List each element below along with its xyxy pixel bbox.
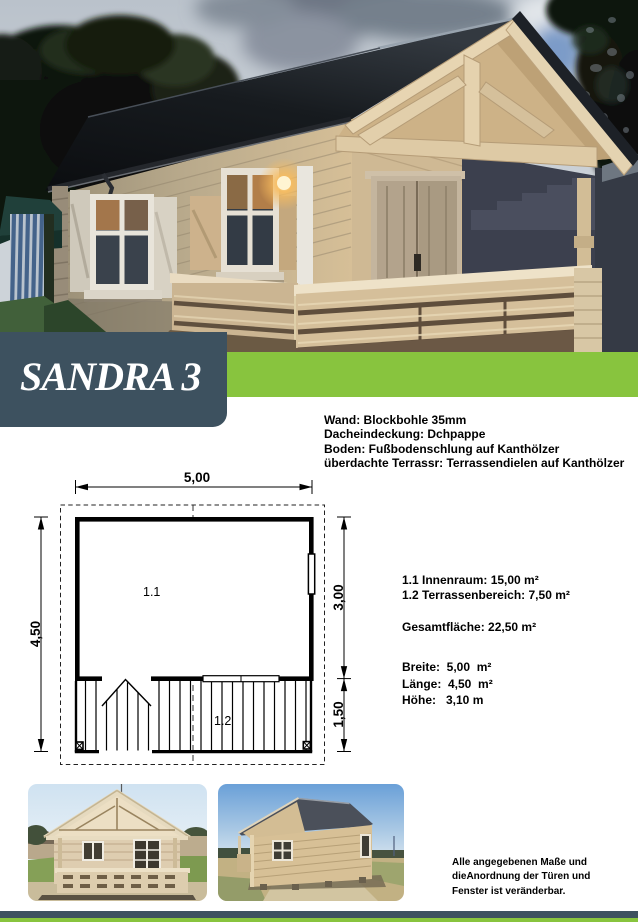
svg-text:1.2: 1.2 <box>214 714 231 728</box>
svg-text:1,50: 1,50 <box>331 701 346 727</box>
svg-text:3,00: 3,00 <box>331 584 346 610</box>
svg-text:1.1: 1.1 <box>143 585 160 599</box>
svg-text:5,00: 5,00 <box>184 470 210 485</box>
svg-text:4,50: 4,50 <box>28 621 43 647</box>
